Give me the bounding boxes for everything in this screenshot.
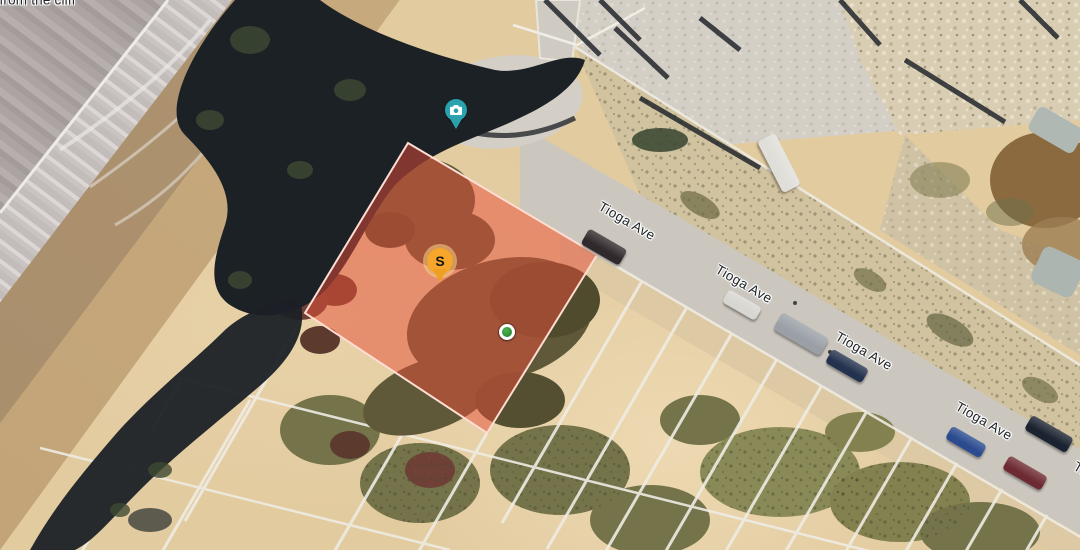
markers-layer: S xyxy=(0,0,1080,550)
pin-tail xyxy=(449,117,463,129)
pin-tail xyxy=(433,269,447,282)
green-dot-marker[interactable] xyxy=(499,324,515,340)
camera-icon xyxy=(450,105,462,115)
satellite-map[interactable]: Beach view from the cliff Tioga AveTioga… xyxy=(0,0,1080,550)
photo-poi-pin[interactable] xyxy=(445,99,467,121)
subject-property-pin[interactable]: S xyxy=(427,248,453,274)
